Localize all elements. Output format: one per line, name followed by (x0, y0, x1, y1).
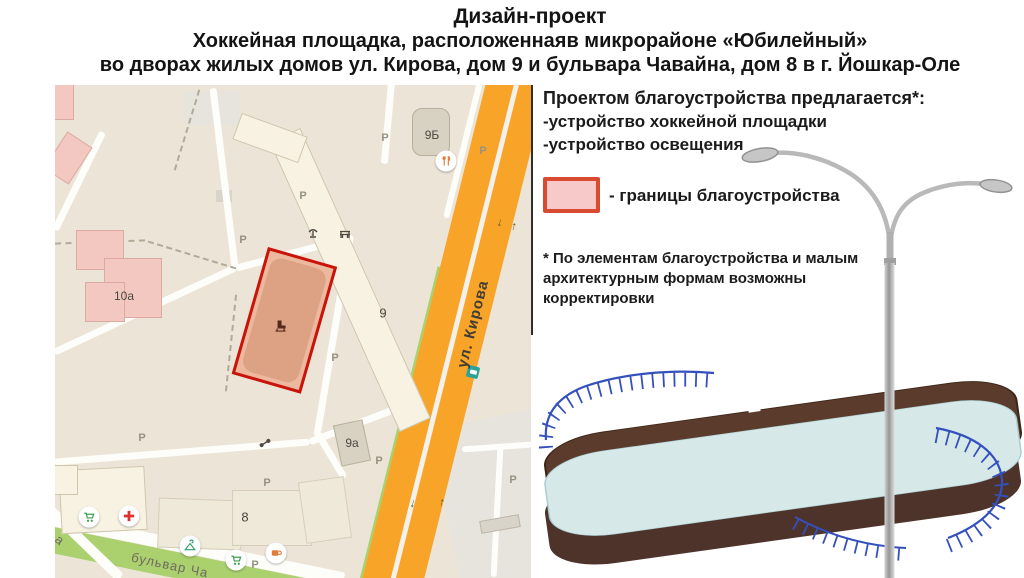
rink-railing-back-left (546, 372, 714, 448)
fountain-icon (306, 226, 320, 240)
bench-icon (338, 227, 352, 241)
building-label-10a: 10а (114, 289, 134, 303)
street-light-pole (885, 263, 895, 578)
legend-boundary-swatch (543, 177, 600, 213)
footpath-dashed (225, 295, 237, 392)
panel-divider (531, 85, 533, 335)
building (55, 465, 78, 495)
street-light-pole-upper (887, 232, 894, 266)
parking-label: Р (251, 559, 258, 571)
footnote: * По элементам благоустройства и малым а… (543, 249, 858, 309)
title-line-3: во дворах жилых домов ул. Кирова, дом 9 … (36, 53, 1024, 77)
rink-ice (541, 393, 1024, 542)
building-9 (232, 113, 307, 163)
street-light-right-arm (890, 183, 984, 244)
dumbbell-icon (255, 433, 274, 452)
cafe-cup-icon (266, 543, 287, 564)
map-road (381, 85, 395, 164)
shop-cart-icon (79, 507, 100, 528)
building-8 (298, 476, 352, 544)
footnote-line: * По элементам благоустройства и малым (543, 249, 858, 269)
building-label-8: 8 (241, 510, 248, 525)
parking-label: Р (479, 145, 486, 157)
shop-cart-icon (226, 550, 247, 571)
building-label-9: 9 (379, 306, 386, 321)
parking-label: Р (263, 477, 270, 489)
street-light-lamp-right (979, 178, 1012, 194)
street-light (741, 145, 1013, 578)
design-project-page: { "title": { "line1": "Дизайн-проект", "… (0, 0, 1024, 578)
building (55, 85, 74, 120)
title-line-1: Дизайн-проект (36, 5, 1024, 29)
parking-label: Р (138, 432, 145, 444)
parking-label: Р (381, 132, 388, 144)
title-line-2: Хоккейная площадка, расположеннаяв микро… (36, 29, 1024, 53)
proposal-item: -устройство освещения (543, 135, 744, 155)
parking-label: Р (299, 190, 306, 202)
proposal-heading: Проектом благоустройства предлагается*: (543, 88, 925, 109)
street-light-pole-collar (884, 258, 896, 265)
parking-label: Р (331, 352, 338, 364)
title-block: Дизайн-проект Хоккейная площадка, распол… (36, 5, 1024, 77)
parking-label: Р (375, 455, 382, 467)
proposal-item: -устройство хоккейной площадки (543, 112, 827, 132)
rink-board-gap (745, 387, 760, 412)
rink-boards-front (541, 422, 1024, 571)
skate-icon (273, 319, 289, 335)
medical-cross-icon (119, 506, 140, 527)
site-map: ↓ ↑ ↓ ↑ ул. Кирова (55, 85, 531, 578)
legend-label: - границы благоустройства (609, 186, 840, 206)
parking-label: Р (509, 474, 516, 486)
street-light-lamp-left (741, 145, 779, 164)
building-label-9a: 9а (345, 436, 358, 450)
restaurant-icon (436, 151, 457, 172)
improvement-boundary (232, 247, 338, 394)
building-label-9b: 9Б (425, 128, 440, 142)
rink-railing-front (795, 517, 906, 555)
parking-label: Р (239, 234, 246, 246)
clothes-hanger-icon (180, 536, 201, 557)
footnote-line: архитектурным формам возможны (543, 269, 858, 289)
rink-railing-right-end (936, 428, 1002, 546)
rink-boards-back (541, 374, 1024, 523)
footnote-line: корректировки (543, 289, 858, 309)
